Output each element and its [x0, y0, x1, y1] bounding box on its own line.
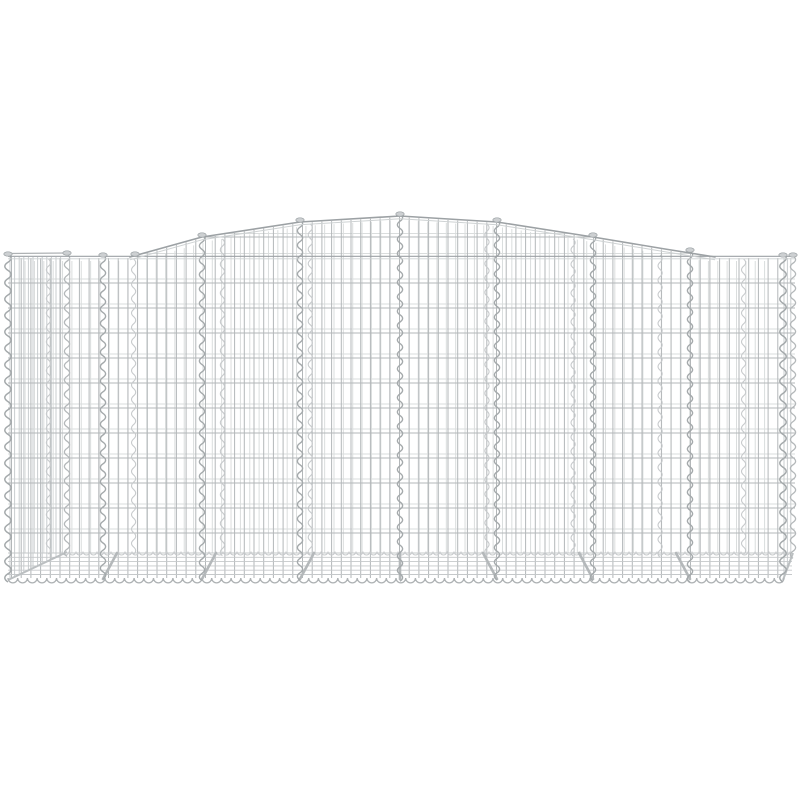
gabion-bottom-spiral-edge [8, 578, 784, 583]
gabion-spiral-echoes [46, 224, 745, 557]
gabion-spiral-seams [5, 214, 796, 582]
gabion-basket-image [0, 0, 800, 800]
product-photo [0, 0, 800, 800]
gabion-front-mesh [8, 217, 795, 578]
